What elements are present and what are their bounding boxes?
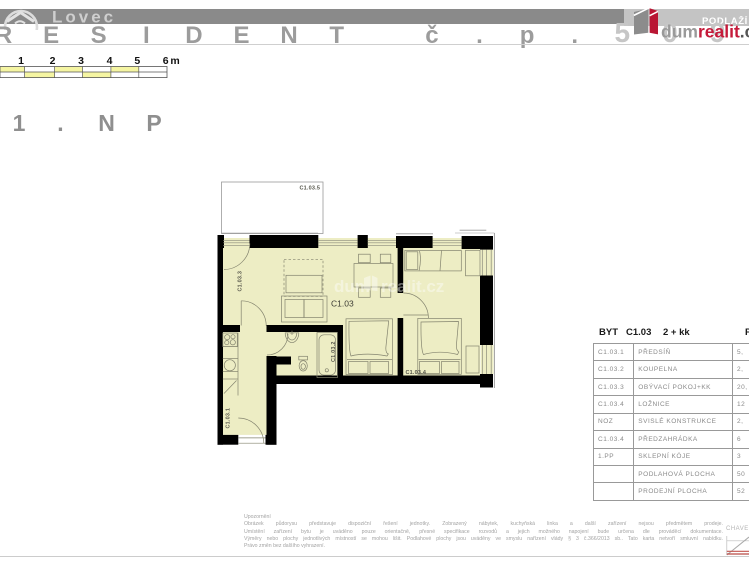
svg-text:realit.cz: realit.cz	[381, 277, 444, 296]
svg-text:C1.03.4: C1.03.4	[406, 370, 427, 376]
svg-text:m: m	[170, 55, 179, 67]
svg-text:C1.03.3: C1.03.3	[238, 271, 244, 292]
svg-text:CHAVELI: CHAVELI	[726, 526, 749, 532]
svg-text:C1.03.5: C1.03.5	[300, 186, 321, 192]
svg-text:3: 3	[78, 55, 84, 67]
svg-text:2: 2	[50, 55, 56, 67]
svg-text:5: 5	[134, 55, 140, 67]
svg-text:4: 4	[107, 55, 113, 67]
svg-text:1: 1	[18, 55, 24, 67]
svg-text:6: 6	[163, 55, 169, 67]
svg-text:C1.03: C1.03	[331, 298, 354, 308]
svg-text:C1.03.2: C1.03.2	[331, 341, 337, 362]
svg-text:C1.03.1: C1.03.1	[226, 408, 232, 429]
